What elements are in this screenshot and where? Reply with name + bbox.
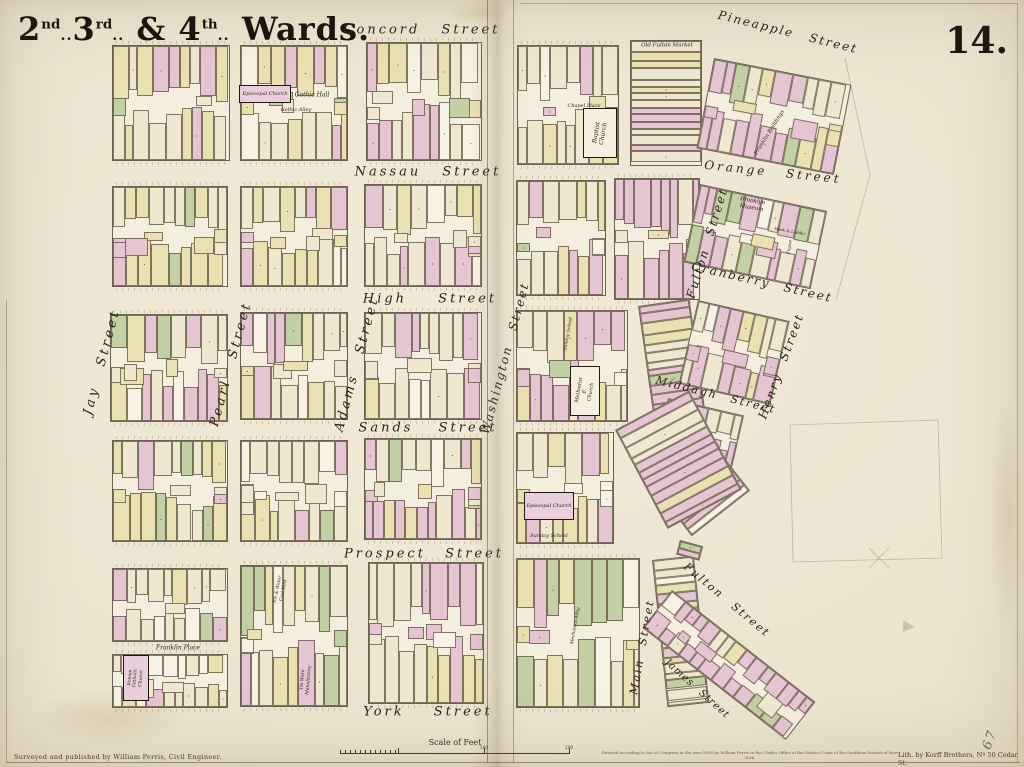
- building-lot: [270, 511, 278, 541]
- building-lot: [145, 315, 157, 353]
- building-lot: [218, 315, 227, 351]
- building-lot: [407, 358, 432, 372]
- building-lot: [285, 313, 302, 346]
- building-lot: [600, 490, 613, 507]
- building-lot: [631, 114, 701, 122]
- scale-bar-tick: [395, 750, 396, 754]
- building-lot: [369, 563, 377, 620]
- building-lot: [543, 181, 559, 223]
- building-lot: [156, 493, 166, 541]
- building-lot: [436, 495, 452, 539]
- scale-bar-tick: [340, 750, 341, 754]
- city-block: [366, 42, 482, 161]
- street-label: Concord Street: [344, 23, 501, 38]
- building-lot: [549, 360, 572, 378]
- building-lot: [517, 369, 530, 386]
- building-lot: [271, 123, 289, 160]
- building-lot: [548, 433, 565, 467]
- copyright-notice: Entered according to Act of Congress in …: [600, 750, 900, 760]
- building-lot: [704, 105, 719, 119]
- building-lot: [414, 644, 427, 703]
- building-lot: [374, 482, 385, 497]
- building-lot: [631, 93, 701, 100]
- building-lot: [174, 618, 184, 641]
- city-block: [112, 186, 228, 287]
- building-lot: [669, 243, 683, 299]
- building-lot: [273, 657, 289, 706]
- building-lot: [427, 646, 438, 703]
- building-lot: [367, 107, 380, 120]
- building-lot: [202, 111, 214, 160]
- building-lot: [127, 315, 145, 362]
- building-lot: [153, 46, 170, 92]
- building-lot: [192, 510, 204, 541]
- building-lot: [187, 569, 202, 604]
- building-lot: [270, 237, 286, 249]
- building-lot: [634, 179, 652, 228]
- building-lot: [659, 250, 668, 299]
- building-lot: [592, 559, 607, 623]
- building-lot: [259, 122, 271, 160]
- building-lot: [241, 441, 250, 482]
- building-lot: [543, 124, 557, 164]
- building-lot: [422, 563, 430, 614]
- building-lot: [166, 497, 176, 541]
- building-lot: [113, 114, 125, 160]
- building-lot: [531, 251, 543, 295]
- building-lot: [400, 246, 409, 286]
- building-lot: [288, 119, 301, 160]
- building-lot: [553, 385, 569, 421]
- building-lot: [580, 46, 593, 95]
- building-lot: [379, 120, 391, 160]
- city-block: [516, 432, 614, 544]
- building-lot: [444, 439, 461, 469]
- scale-bar-tick: [390, 750, 391, 754]
- building-lot: [170, 485, 191, 496]
- page-edge: [520, 3, 1018, 4]
- landmark-label: Episcopal Church: [243, 91, 288, 97]
- building-lot: [448, 563, 461, 607]
- building-lot: [208, 187, 218, 228]
- building-lot: [421, 380, 430, 419]
- landmark-label: Sunday School: [530, 533, 568, 539]
- building-lot: [319, 566, 330, 632]
- building-lot: [254, 491, 267, 500]
- building-lot: [302, 112, 316, 160]
- building-lot: [241, 113, 259, 160]
- building-lot: [125, 238, 148, 256]
- building-lot: [298, 375, 307, 419]
- building-lot: [461, 439, 471, 469]
- building-lot: [203, 506, 213, 541]
- building-lot: [219, 690, 227, 707]
- building-lot: [476, 563, 483, 625]
- building-lot: [157, 315, 171, 359]
- building-lot: [593, 46, 603, 97]
- scale-bar-tick: [375, 750, 376, 754]
- building-lot: [372, 91, 393, 103]
- building-lot: [541, 375, 553, 421]
- building-lot: [285, 46, 297, 88]
- building-lot: [577, 181, 586, 218]
- building-lot: [307, 246, 318, 286]
- building-lot: [365, 377, 379, 419]
- building-lot: [334, 102, 347, 114]
- scale-of-feet-label: Scale of Feet: [340, 738, 570, 747]
- building-lot: [563, 659, 578, 707]
- building-lot: [547, 655, 563, 707]
- city-block: [112, 440, 228, 542]
- building-lot: [543, 107, 556, 116]
- building-lot: [186, 655, 199, 676]
- building-lot: [216, 46, 228, 102]
- city-block: [516, 558, 640, 708]
- building-lot: [186, 315, 201, 348]
- building-lot: [527, 120, 543, 164]
- building-lot: [399, 651, 414, 703]
- building-lot: [314, 46, 325, 84]
- building-lot: [402, 439, 416, 470]
- building-lot: [429, 313, 439, 354]
- building-lot: [578, 639, 595, 707]
- city-block: [240, 312, 348, 420]
- building-lot: [151, 244, 169, 286]
- building-lot: [440, 243, 455, 286]
- building-lot: [623, 559, 638, 608]
- building-lot: [518, 46, 527, 91]
- building-lot: [529, 630, 550, 644]
- building-lot: [193, 441, 202, 475]
- building-lot: [113, 187, 125, 227]
- scale-bar-tick: [355, 750, 356, 754]
- building-lot: [148, 569, 164, 602]
- building-lot: [369, 623, 382, 635]
- street-label: High Street: [363, 292, 497, 307]
- building-lot: [330, 566, 347, 617]
- building-lot: [280, 187, 295, 232]
- building-lot: [450, 43, 461, 99]
- building-lot: [214, 116, 226, 160]
- building-lot: [292, 441, 304, 483]
- building-lot: [431, 439, 444, 487]
- building-lot: [166, 114, 183, 160]
- scale-bar-tick: [385, 750, 386, 754]
- building-lot: [126, 609, 141, 641]
- page-edge: [487, 0, 488, 763]
- street-label: Prospect Street: [344, 547, 504, 562]
- building-lot: [476, 508, 481, 539]
- building-lot: [565, 433, 582, 486]
- building-lot: [533, 311, 547, 351]
- building-lot: [334, 360, 347, 378]
- building-lot: [195, 687, 208, 707]
- city-block: [110, 314, 228, 422]
- building-lot: [461, 43, 478, 83]
- building-lot: [208, 684, 219, 707]
- building-lot: [212, 441, 226, 483]
- building-lot: [253, 187, 264, 223]
- landmark-label: Roman Catholic Church: [127, 665, 145, 690]
- building-lot: [577, 311, 594, 361]
- building-lot: [387, 254, 400, 286]
- building-lot: [547, 311, 564, 363]
- landmark-building: Roman Catholic Church: [123, 655, 149, 701]
- building-lot: [184, 387, 198, 421]
- building-lot: [241, 566, 254, 636]
- building-lot: [263, 187, 279, 222]
- street-label: Sands Street: [358, 421, 497, 436]
- building-lot: [651, 179, 661, 227]
- building-lot: [137, 46, 153, 96]
- building-lot: [208, 655, 223, 673]
- city-block: [240, 186, 348, 287]
- scale-bar-tick: [365, 750, 366, 754]
- city-block: [368, 562, 484, 704]
- building-lot: [600, 433, 609, 474]
- building-lot: [316, 112, 332, 160]
- building-lot: [367, 43, 377, 92]
- building-lot: [409, 379, 421, 419]
- landmark-building: Baptist Church: [583, 108, 617, 158]
- building-lot: [334, 235, 347, 247]
- building-lot: [463, 655, 475, 703]
- building-lot: [631, 68, 701, 79]
- building-lot: [428, 502, 436, 539]
- building-lot: [376, 439, 389, 482]
- building-lot: [402, 112, 413, 160]
- building-lot: [383, 185, 398, 230]
- building-lot: [320, 510, 334, 541]
- building-lot: [171, 315, 185, 358]
- building-lot: [394, 563, 411, 621]
- building-lot: [453, 230, 467, 248]
- building-lot: [670, 179, 679, 238]
- page-edge: [1017, 3, 1018, 763]
- building-lot: [136, 569, 148, 595]
- page-edge: [6, 300, 7, 762]
- building-lot: [460, 563, 476, 626]
- landmark-building: Episcopal Church: [239, 85, 291, 103]
- building-lot: [379, 383, 395, 419]
- building-lot: [253, 313, 267, 353]
- building-lot: [473, 185, 481, 234]
- landmark-building: Methodist E. Church: [570, 366, 600, 416]
- building-lot: [202, 441, 212, 477]
- city-block: [240, 45, 348, 161]
- building-lot: [275, 313, 285, 363]
- atlas-map-page: 2nd..3rd.. & 4th.. Wards. 14. Episcopal …: [0, 0, 1024, 767]
- building-lot: [241, 372, 254, 419]
- building-lot: [305, 566, 319, 622]
- building-lot: [365, 185, 383, 228]
- building-lot: [468, 100, 481, 118]
- building-lot: [154, 616, 165, 641]
- building-lot: [457, 185, 473, 217]
- building-lot: [241, 366, 254, 376]
- building-lot: [550, 46, 568, 89]
- building-lot: [127, 569, 135, 603]
- building-lot: [598, 181, 605, 231]
- building-lot: [190, 46, 200, 84]
- building-lot: [341, 248, 347, 286]
- building-lot: [468, 368, 481, 383]
- building-lot: [592, 239, 605, 255]
- page-edge: [513, 0, 514, 763]
- building-lot: [201, 315, 219, 364]
- building-lot: [194, 237, 214, 254]
- building-lot: [615, 255, 628, 299]
- building-lot: [558, 246, 570, 295]
- building-lot: [438, 655, 450, 703]
- building-lot: [527, 46, 540, 84]
- building-lot: [332, 125, 341, 160]
- building-lot: [544, 251, 558, 295]
- building-lot: [582, 433, 600, 476]
- building-lot: [389, 43, 407, 83]
- building-lot: [213, 617, 227, 641]
- building-lot: [377, 563, 394, 627]
- building-lot: [250, 441, 266, 474]
- building-lot: [631, 151, 701, 162]
- building-lot: [567, 46, 579, 83]
- building-lot: [365, 243, 374, 286]
- building-lot: [452, 489, 465, 539]
- building-lot: [316, 187, 332, 231]
- building-lot: [438, 43, 450, 96]
- building-lot: [265, 566, 274, 625]
- building-lot: [268, 247, 282, 286]
- building-lot: [427, 185, 445, 223]
- building-lot: [200, 46, 216, 96]
- building-lot: [411, 563, 421, 607]
- building-lot: [253, 241, 268, 286]
- building-lot: [306, 187, 315, 218]
- building-lot: [614, 372, 627, 386]
- building-lot: [433, 632, 455, 648]
- building-lot: [335, 441, 347, 475]
- page-edge: [6, 762, 1020, 763]
- building-lot: [136, 187, 149, 218]
- building-lot: [241, 638, 254, 652]
- building-lot: [631, 129, 701, 136]
- building-lot: [288, 647, 297, 706]
- building-lot: [337, 46, 347, 98]
- landmark-building: Episcopal Church: [524, 492, 574, 520]
- building-lot: [394, 233, 408, 243]
- building-lot: [181, 441, 193, 476]
- surveyor-credit: Surveyed and published by William Perris…: [14, 753, 222, 761]
- building-lot: [395, 368, 409, 419]
- building-lot: [631, 52, 701, 60]
- building-lot: [602, 46, 617, 95]
- building-lot: [214, 229, 227, 243]
- building-lot: [324, 655, 339, 706]
- city-block: [364, 312, 482, 420]
- building-lot: [295, 249, 307, 286]
- building-lot: [113, 98, 126, 116]
- city-block: [364, 184, 482, 287]
- building-lot: [369, 639, 385, 703]
- building-lot: [177, 504, 192, 541]
- building-lot: [463, 313, 478, 360]
- building-lot: [218, 187, 227, 233]
- building-lot: [113, 46, 129, 99]
- building-lot: [367, 123, 379, 160]
- building-lot: [173, 371, 184, 421]
- building-lot: [164, 187, 175, 223]
- building-lot: [430, 563, 447, 620]
- building-lot: [631, 87, 701, 94]
- building-lot: [339, 637, 347, 706]
- building-lot: [113, 686, 122, 707]
- building-lot: [147, 655, 163, 676]
- building-lot: [420, 313, 429, 349]
- building-lot: [271, 46, 285, 90]
- building-lot: [202, 569, 211, 602]
- building-lot: [283, 361, 308, 371]
- building-lot: [195, 187, 209, 218]
- building-lot: [607, 559, 623, 621]
- street-label: Nassau Street: [355, 165, 502, 180]
- building-lot: [408, 242, 425, 286]
- building-lot: [295, 187, 307, 218]
- building-lot: [559, 559, 575, 604]
- building-lot: [241, 187, 253, 229]
- building-lot: [141, 619, 153, 641]
- building-lot: [389, 439, 402, 482]
- building-lot: [373, 501, 384, 539]
- building-lot: [165, 603, 185, 614]
- building-lot: [462, 124, 480, 160]
- building-lot: [305, 484, 327, 504]
- building-lot: [192, 107, 202, 160]
- building-lot: [534, 659, 547, 707]
- building-lot: [122, 441, 138, 478]
- building-lot: [129, 46, 137, 90]
- building-lot: [470, 634, 483, 651]
- landmark-label: Baptist Church: [590, 116, 610, 150]
- building-lot: [395, 313, 412, 358]
- building-lot: [411, 185, 427, 229]
- city-block: [630, 40, 702, 166]
- building-lot: [517, 559, 534, 608]
- building-lot: [377, 43, 389, 84]
- scale-bar-tick: [370, 750, 371, 754]
- building-lot: [306, 236, 320, 252]
- building-lot: [468, 236, 481, 247]
- building-lot: [267, 441, 279, 476]
- building-lot: [578, 496, 587, 543]
- scale-bar-number: 200: [565, 746, 574, 751]
- building-lot: [113, 441, 122, 474]
- building-lot: [365, 439, 376, 470]
- building-lot: [631, 100, 701, 107]
- building-lot: [324, 313, 340, 351]
- building-lot: [154, 441, 172, 476]
- building-lot: [678, 179, 693, 225]
- building-lot: [397, 185, 411, 235]
- building-lot: [559, 181, 577, 220]
- building-lot: [169, 253, 181, 286]
- building-lot: [133, 110, 149, 160]
- building-lot: [178, 655, 186, 679]
- building-lot: [113, 655, 121, 672]
- building-lot: [259, 650, 273, 706]
- building-lot: [185, 608, 200, 641]
- building-lot: [449, 98, 470, 118]
- landmark-label: Gothic Alley: [281, 107, 312, 113]
